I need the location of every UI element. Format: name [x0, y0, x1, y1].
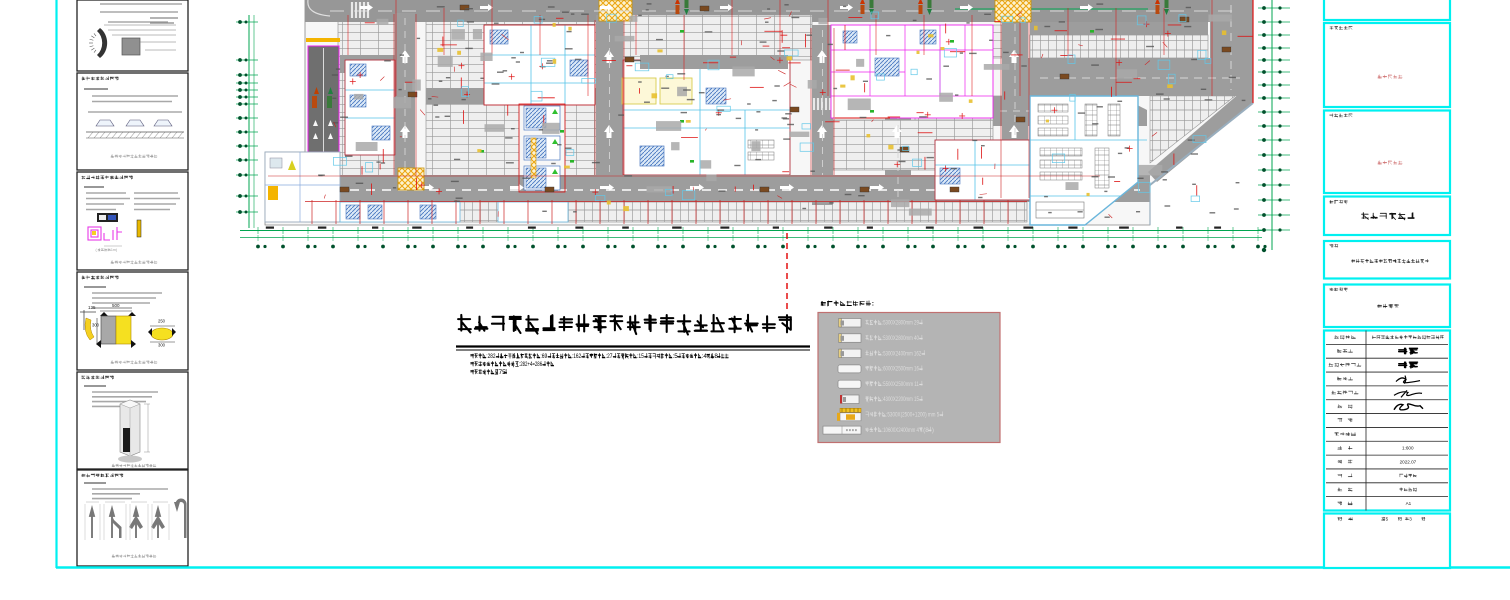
svg-text::27: :27: [606, 353, 613, 360]
svg-text::4: :4: [702, 353, 708, 360]
svg-text::282: :282: [486, 353, 496, 360]
svg-text::10600X2400mm 4: :10600X2400mm 4: [882, 427, 919, 434]
svg-text:250: 250: [158, 319, 166, 324]
svg-text::4300X2200mm 15: :4300X2200mm 15: [882, 396, 919, 403]
svg-text::282+4=286: :282+4=286: [519, 361, 542, 368]
svg-text:1:600: 1:600: [1402, 446, 1414, 451]
svg-text:3: 3: [1409, 516, 1412, 521]
svg-text::5300X2800mm 40: :5300X2800mm 40: [882, 335, 919, 342]
svg-text:A1: A1: [1406, 501, 1412, 506]
svg-text::162: :162: [572, 353, 582, 360]
svg-text::5300X2800mm 29: :5300X2800mm 29: [882, 320, 919, 327]
svg-text::5300X(2500+1200) mm 5: :5300X(2500+1200) mm 5: [886, 412, 940, 419]
svg-text:1m): 1m): [111, 248, 117, 252]
svg-text::69: :69: [540, 353, 547, 360]
svg-text::: :: [872, 301, 874, 308]
svg-text:500: 500: [112, 303, 120, 308]
svg-text::5500X2500mm 11: :5500X2500mm 11: [882, 381, 919, 388]
svg-text:300: 300: [92, 323, 100, 328]
svg-text:2022.07: 2022.07: [1400, 459, 1417, 464]
svg-text:125: 125: [88, 305, 96, 310]
svg-text:300: 300: [158, 343, 166, 348]
svg-text::6000X2500mm 16: :6000X2500mm 16: [882, 366, 919, 373]
svg-text::5: :5: [673, 353, 679, 360]
svg-text::15: :15: [637, 353, 644, 360]
svg-text::5300X2400mm 162: :5300X2400mm 162: [882, 350, 922, 357]
svg-text:5: 5: [1386, 516, 1389, 521]
svg-text:): ): [932, 427, 934, 434]
